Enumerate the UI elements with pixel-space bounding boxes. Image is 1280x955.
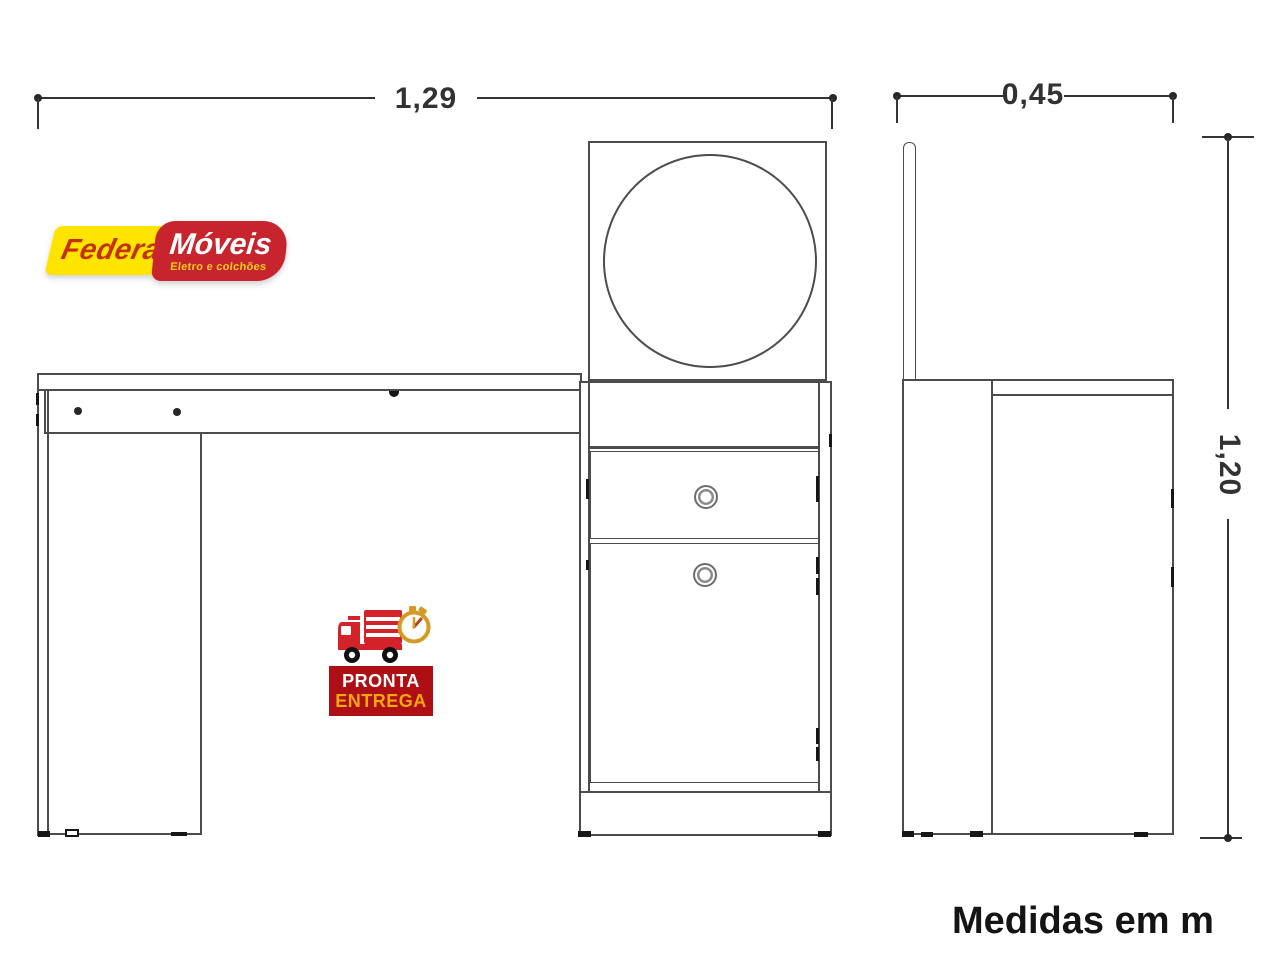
- drawer-knob: [694, 485, 718, 509]
- door-hinge-mark-bottom-1: [816, 728, 819, 744]
- dimension-depth-label: 0,45: [1000, 78, 1066, 112]
- side-foot-1: [902, 831, 914, 837]
- side-foot-2: [921, 832, 933, 837]
- stopwatch-icon: [400, 606, 429, 642]
- leg-edge-mark-1: [36, 393, 39, 405]
- leg-foot-right: [171, 832, 187, 836]
- drawer-slide-mark-left: [586, 479, 589, 499]
- dimension-width-tick-left: [37, 98, 39, 129]
- federal-moveis-logo: Federal Móveis Eletro e colchões: [48, 221, 286, 281]
- federal-logo-name2: Móveis: [168, 230, 273, 260]
- leg-foot-left: [38, 831, 50, 837]
- dimension-height-dot-bottom: [1224, 834, 1232, 842]
- dimension-height-line-bottom: [1227, 519, 1229, 838]
- side-panel-divider: [991, 380, 993, 834]
- dimension-height-label: 1,20: [1214, 431, 1244, 499]
- apron-hole-right: [173, 408, 181, 416]
- door-knob: [693, 563, 717, 587]
- dimension-width-line-left: [38, 97, 375, 99]
- pronta-label: PRONTA: [342, 671, 420, 691]
- desk-apron: [44, 389, 582, 434]
- pronta-entrega-badge: PRONTA ENTREGA: [326, 604, 436, 720]
- dimension-width-tick-right: [831, 98, 833, 129]
- side-body: [902, 379, 1174, 835]
- federal-logo-tagline: Eletro e colchões: [170, 261, 267, 273]
- niche-shelf-line: [589, 446, 820, 449]
- units-note: Medidas em m: [952, 900, 1252, 943]
- side-edge-mark-1: [1171, 489, 1174, 508]
- leg-edge-mark-2: [36, 414, 39, 426]
- cabinet-edge-mark: [829, 434, 832, 447]
- dimension-height-line-top: [1227, 137, 1229, 409]
- side-edge-mark-2: [1171, 567, 1174, 587]
- side-foot-3: [970, 831, 983, 837]
- side-foot-4: [1134, 832, 1148, 837]
- dimension-width-label: 1,29: [390, 82, 462, 116]
- dimension-depth-tick-right: [1172, 96, 1174, 123]
- entrega-label: ENTREGA: [335, 691, 427, 711]
- dimension-depth-tick-left: [896, 96, 898, 123]
- dimension-depth-line-left: [897, 95, 1004, 97]
- pronta-entrega-box: PRONTA ENTREGA: [329, 666, 433, 716]
- product-dimension-diagram: 1,29: [0, 0, 1280, 955]
- cabinet-foot-right: [818, 831, 831, 837]
- leg-inner-edge: [47, 390, 49, 836]
- door-hinge-mark-top-2: [816, 578, 819, 595]
- plinth-line: [581, 791, 831, 793]
- delivery-truck-icon: [330, 604, 432, 668]
- round-mirror: [603, 154, 817, 368]
- mirror-back-panel: [903, 142, 916, 381]
- leg-right-edge: [200, 433, 202, 835]
- apron-hole-left: [74, 407, 82, 415]
- federal-logo-red-banner: Móveis Eletro e colchões: [151, 221, 289, 281]
- dimension-width-line-right: [477, 97, 833, 99]
- leg-outer-edge: [37, 390, 39, 836]
- cabinet-foot-left: [578, 831, 591, 837]
- door-hinge-mark-top-1: [816, 557, 819, 574]
- side-tabletop-edge: [993, 394, 1173, 396]
- door-hinge-mark-left: [586, 560, 589, 570]
- door-hinge-mark-bottom-2: [816, 747, 819, 761]
- dimension-height-tick-bottom: [1200, 837, 1242, 839]
- leg-foot-glide: [65, 829, 79, 837]
- dimension-depth-line-right: [1064, 95, 1173, 97]
- drawer-slide-mark-right: [816, 476, 819, 502]
